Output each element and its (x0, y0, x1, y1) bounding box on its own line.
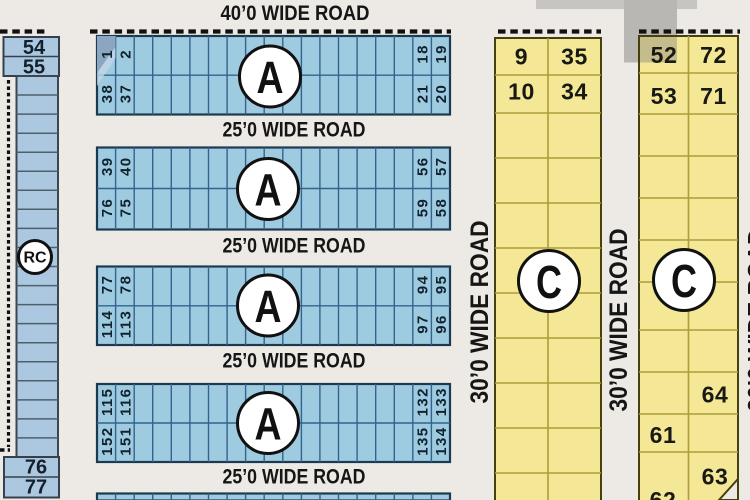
svg-text:133: 133 (433, 387, 450, 416)
svg-text:63: 63 (702, 464, 729, 490)
svg-text:9: 9 (515, 44, 528, 70)
svg-text:40: 40 (117, 156, 134, 176)
svg-text:56: 56 (415, 156, 432, 176)
svg-text:114: 114 (99, 310, 116, 338)
svg-text:135: 135 (415, 426, 432, 455)
svg-text:116: 116 (117, 388, 134, 416)
svg-text:151: 151 (117, 426, 134, 455)
svg-text:53: 53 (651, 83, 678, 109)
svg-text:35: 35 (561, 44, 588, 70)
svg-text:97: 97 (415, 314, 432, 334)
svg-text:30’0 WIDE ROAD: 30’0 WIDE ROAD (744, 229, 750, 412)
svg-text:77: 77 (25, 477, 47, 499)
svg-text:25’0 WIDE ROAD: 25’0 WIDE ROAD (223, 350, 366, 373)
svg-text:37: 37 (117, 84, 134, 104)
svg-text:20: 20 (433, 84, 450, 104)
svg-text:72: 72 (700, 42, 727, 68)
svg-text:2: 2 (117, 49, 134, 59)
svg-text:A: A (255, 165, 282, 216)
svg-text:39: 39 (99, 156, 116, 176)
svg-text:C: C (536, 256, 562, 308)
svg-text:62: 62 (650, 487, 677, 500)
svg-text:30’0 WIDE ROAD: 30’0 WIDE ROAD (466, 221, 494, 404)
svg-text:25’0 WIDE ROAD: 25’0 WIDE ROAD (223, 119, 366, 142)
svg-text:59: 59 (415, 198, 432, 218)
svg-text:75: 75 (117, 198, 134, 218)
svg-text:115: 115 (99, 388, 116, 416)
svg-text:34: 34 (561, 79, 588, 105)
svg-text:96: 96 (433, 314, 450, 334)
svg-text:64: 64 (702, 382, 729, 408)
svg-text:77: 77 (99, 275, 116, 295)
svg-text:95: 95 (433, 275, 450, 295)
svg-text:76: 76 (25, 457, 47, 479)
svg-text:RC: RC (23, 250, 47, 267)
svg-text:C: C (671, 255, 697, 307)
svg-text:1: 1 (99, 49, 116, 59)
svg-text:61: 61 (650, 422, 677, 448)
svg-text:38: 38 (99, 84, 116, 104)
svg-text:94: 94 (415, 275, 432, 295)
svg-text:134: 134 (433, 426, 450, 455)
svg-text:78: 78 (117, 275, 134, 295)
svg-text:40’0 WIDE ROAD: 40’0 WIDE ROAD (221, 2, 370, 25)
svg-text:21: 21 (415, 84, 432, 104)
svg-text:113: 113 (117, 310, 134, 338)
svg-text:76: 76 (99, 198, 116, 218)
svg-text:25’0 WIDE ROAD: 25’0 WIDE ROAD (223, 235, 366, 258)
svg-text:57: 57 (433, 156, 450, 176)
svg-text:132: 132 (415, 387, 432, 416)
svg-text:152: 152 (99, 426, 116, 455)
svg-text:A: A (255, 281, 282, 332)
svg-text:25’0 WIDE ROAD: 25’0 WIDE ROAD (223, 466, 366, 489)
svg-text:19: 19 (433, 44, 450, 64)
svg-text:58: 58 (433, 198, 450, 218)
svg-text:A: A (255, 399, 282, 450)
svg-text:71: 71 (700, 83, 727, 109)
svg-text:10: 10 (508, 79, 535, 105)
svg-text:A: A (257, 52, 284, 103)
svg-text:30’0 WIDE ROAD: 30’0 WIDE ROAD (605, 229, 633, 412)
svg-text:52: 52 (651, 42, 678, 68)
svg-text:18: 18 (415, 44, 432, 64)
